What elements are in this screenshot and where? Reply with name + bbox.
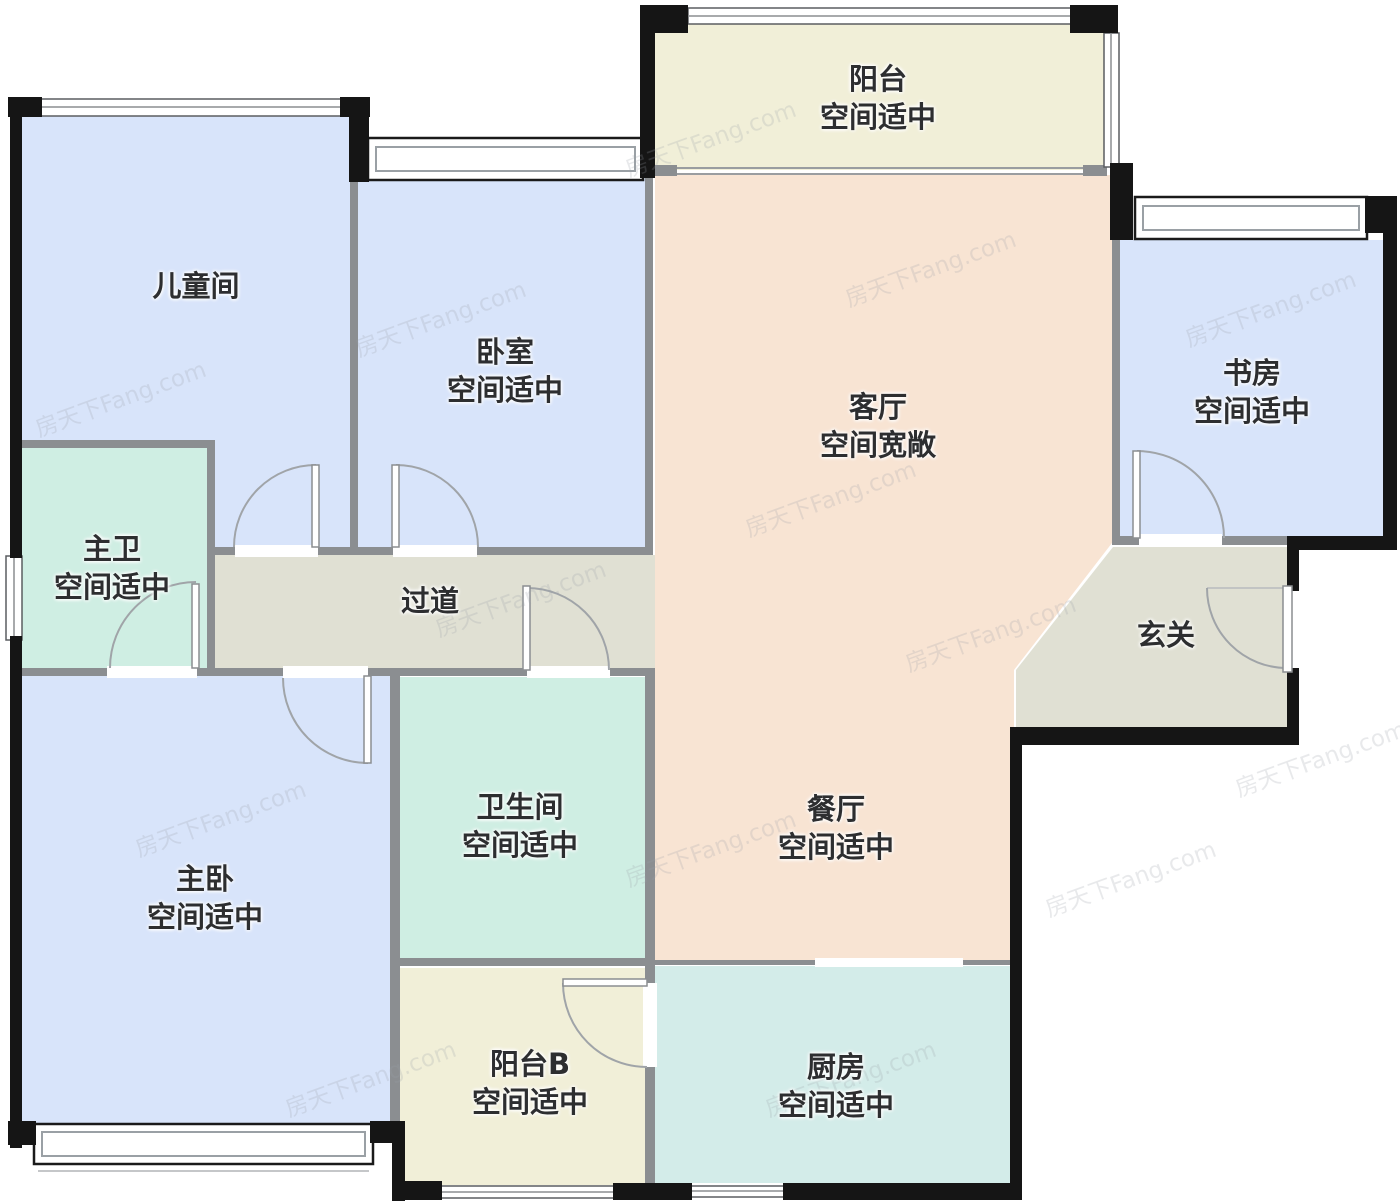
room-name: 厨房 <box>778 1048 894 1086</box>
wall-foyer-bottom <box>1010 727 1299 745</box>
master-bath-left-window <box>6 556 22 640</box>
room-note: 空间适中 <box>778 828 894 866</box>
room-label-study: 书房 空间适中 <box>1194 354 1310 430</box>
wall-segment <box>783 1183 1022 1200</box>
room-label-kitchen: 厨房 空间适中 <box>778 1048 894 1124</box>
room-note: 空间适中 <box>472 1083 588 1121</box>
room-name: 书房 <box>1194 354 1310 392</box>
room-name: 卫生间 <box>462 788 578 826</box>
wall-segment <box>610 668 655 676</box>
wall-segment <box>10 668 107 676</box>
wall-segment <box>318 547 393 555</box>
room-note: 空间适中 <box>820 98 936 136</box>
room-note: 空间适中 <box>54 568 170 606</box>
floor-plan: 房天下Fang.com 房天下Fang.com 房天下Fang.com 房天下F… <box>0 0 1400 1201</box>
wall-segment <box>1287 668 1299 729</box>
room-label-living: 客厅 空间宽敞 <box>820 388 936 464</box>
study-bay-window <box>1135 197 1367 239</box>
wall-segment <box>1365 196 1397 233</box>
wall-bedroom-living <box>645 178 653 555</box>
room-label-bathroom: 卫生间 空间适中 <box>462 788 578 864</box>
floor-plan-drawing <box>0 0 1400 1201</box>
wall-bath-dining <box>645 676 655 966</box>
room-note: 空间适中 <box>147 898 263 936</box>
wall-left-lower <box>10 636 22 1148</box>
dining-kitchen-opening <box>815 958 963 967</box>
wall-segment <box>477 547 653 555</box>
room-label-hallway: 过道 <box>401 582 459 620</box>
wall-segment <box>370 1121 405 1143</box>
room-note: 空间宽敞 <box>820 426 936 464</box>
balcony-b-bottom-window <box>436 1186 616 1198</box>
room-label-bedroom: 卧室 空间适中 <box>447 333 563 409</box>
room-label-balcony: 阳台 空间适中 <box>820 60 936 136</box>
room-name: 主卫 <box>54 530 170 568</box>
wall-masterbed-bath <box>390 676 400 1123</box>
wall-segment <box>1070 5 1118 33</box>
room-note: 空间适中 <box>778 1086 894 1124</box>
wall-segment <box>1110 163 1133 240</box>
room-name: 玄关 <box>1137 616 1195 654</box>
room-label-balcony-b: 阳台B 空间适中 <box>472 1045 588 1121</box>
wall-segment <box>645 1066 655 1183</box>
room-note: 空间适中 <box>462 826 578 864</box>
room-label-children-room: 儿童间 <box>152 267 239 305</box>
wall-segment <box>8 1121 36 1145</box>
room-name: 客厅 <box>820 388 936 426</box>
wall-segment <box>613 1183 692 1200</box>
wall-segment <box>392 1181 442 1200</box>
wall-left-upper <box>10 115 22 558</box>
wall-segment <box>640 5 688 33</box>
room-note: 空间适中 <box>447 371 563 409</box>
room-label-dining: 餐厅 空间适中 <box>778 790 894 866</box>
room-name: 儿童间 <box>152 267 239 305</box>
room-note: 空间适中 <box>1194 392 1310 430</box>
wall-study-right <box>1383 231 1397 538</box>
room-name: 餐厅 <box>778 790 894 828</box>
room-name: 主卧 <box>147 860 263 898</box>
wall-dining-right <box>1010 743 1022 1200</box>
wall-master-bath-right <box>207 440 215 676</box>
wall-bath-balconyb <box>400 958 655 966</box>
room-name: 阳台B <box>472 1045 588 1083</box>
room-label-foyer: 玄关 <box>1137 616 1195 654</box>
master-bedroom-bay-window <box>34 1124 373 1171</box>
room-name: 卧室 <box>447 333 563 371</box>
wall-segment <box>1287 543 1299 591</box>
bedroom-bay-window <box>368 138 643 180</box>
room-label-master-bath: 主卫 空间适中 <box>54 530 170 606</box>
wall-segment <box>1287 536 1397 550</box>
kitchen-bottom-window <box>690 1186 785 1197</box>
wall-children-bedroom <box>350 178 358 555</box>
wall-segment <box>349 97 369 182</box>
wall-master-bath-top <box>10 440 215 448</box>
wall-segment <box>215 547 235 555</box>
room-name: 阳台 <box>820 60 936 98</box>
wall-segment <box>8 97 42 117</box>
wall-study-left <box>1112 238 1120 545</box>
room-name: 过道 <box>401 582 459 620</box>
wall-segment <box>1222 536 1287 545</box>
balcony-top-window <box>688 8 1072 24</box>
balcony-right-window <box>1104 33 1119 167</box>
children-room-top-window <box>40 99 342 116</box>
room-label-master-bedroom: 主卧 空间适中 <box>147 860 263 936</box>
wall-segment <box>368 668 527 676</box>
wall-segment <box>197 668 283 676</box>
